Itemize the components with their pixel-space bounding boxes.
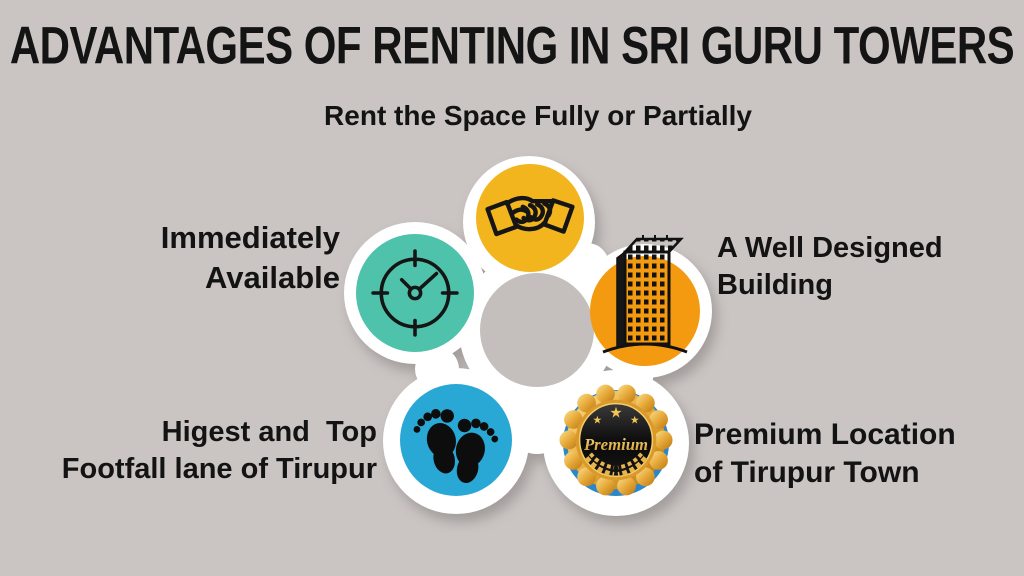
label-line: Premium Location (694, 416, 956, 454)
clock-icon (369, 247, 461, 339)
badge-star: ★ (592, 413, 602, 426)
label-line: Footfall lane of Tirupur (62, 451, 377, 488)
center-disc (480, 273, 594, 387)
premium-badge-icon: ★ ★ ★ Premium (557, 381, 675, 499)
footprints-icon (408, 392, 504, 488)
label-highest-footfall: Higest and Top Footfall lane of Tirupur (62, 414, 377, 488)
label-immediately-available: Immediately Available (161, 218, 340, 297)
advantage-circle-premium: ★ ★ ★ Premium (563, 390, 669, 496)
badge-label: Premium (583, 435, 648, 454)
building-icon (595, 226, 695, 361)
label-line: Higest and Top (62, 414, 377, 451)
label-line: A Well Designed (717, 230, 943, 267)
label-line: Available (161, 258, 340, 298)
advantage-circle-rent (476, 164, 584, 272)
badge-star: ★ (609, 404, 622, 421)
advantage-circle-available (356, 234, 474, 352)
label-premium-location: Premium Location of Tirupur Town (694, 416, 956, 493)
label-line: Building (717, 267, 943, 304)
label-well-designed-building: A Well Designed Building (717, 230, 943, 304)
advantage-circle-footfall (400, 384, 512, 496)
badge-star: ★ (630, 413, 640, 426)
label-line: of Tirupur Town (694, 454, 956, 492)
label-line: Immediately (161, 218, 340, 258)
handshake-icon (482, 188, 578, 248)
infographic-canvas: ADVANTAGES OF RENTING IN SRI GURU TOWERS… (0, 0, 1024, 576)
advantage-circle-building (590, 256, 700, 366)
